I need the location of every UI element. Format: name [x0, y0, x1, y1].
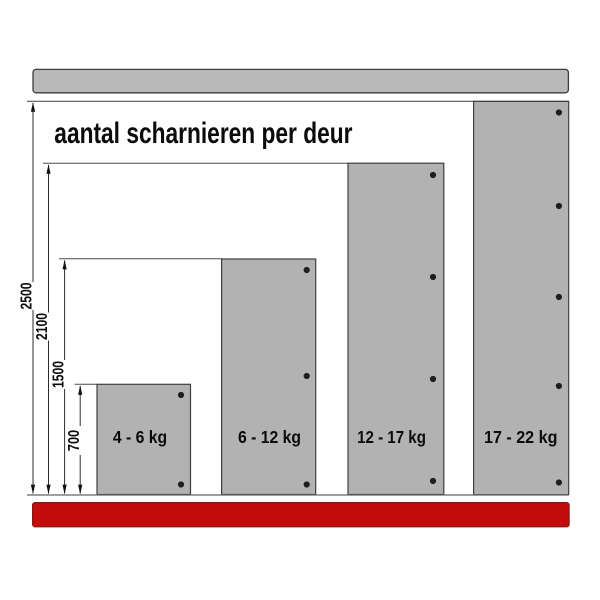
svg-text:2100: 2100: [34, 313, 52, 340]
svg-text:aantal scharnieren per deur: aantal scharnieren per deur: [54, 116, 352, 150]
svg-text:4 - 6 kg: 4 - 6 kg: [113, 427, 167, 447]
svg-text:12 - 17 kg: 12 - 17 kg: [357, 427, 426, 448]
svg-text:2500: 2500: [18, 282, 36, 309]
svg-text:1500: 1500: [50, 361, 68, 388]
svg-text:700: 700: [66, 430, 84, 451]
svg-text:17 - 22 kg: 17 - 22 kg: [484, 427, 557, 447]
svg-text:6 - 12 kg: 6 - 12 kg: [238, 427, 301, 447]
